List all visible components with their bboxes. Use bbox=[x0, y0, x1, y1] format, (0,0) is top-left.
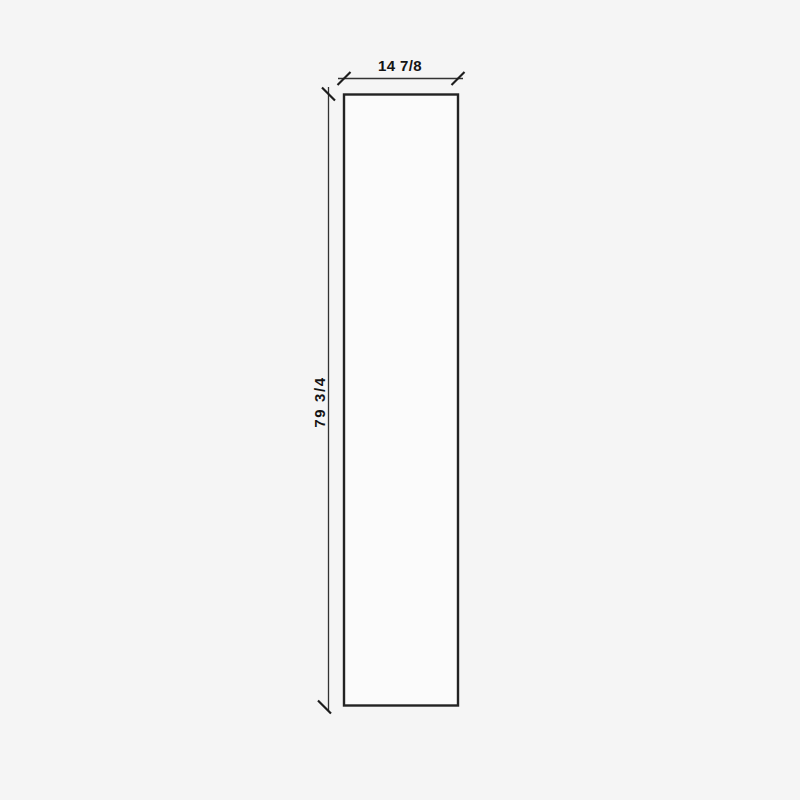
drawing-canvas: 14 7/8 79 3/4 bbox=[0, 0, 800, 800]
panel-drawing: 14 7/8 79 3/4 bbox=[0, 0, 800, 800]
height-dimension-label: 79 3/4 bbox=[311, 376, 328, 427]
panel-outline bbox=[344, 95, 458, 706]
width-dimension-label: 14 7/8 bbox=[378, 57, 422, 74]
height-dimension: 79 3/4 bbox=[311, 87, 336, 714]
width-dimension: 14 7/8 bbox=[338, 57, 465, 85]
